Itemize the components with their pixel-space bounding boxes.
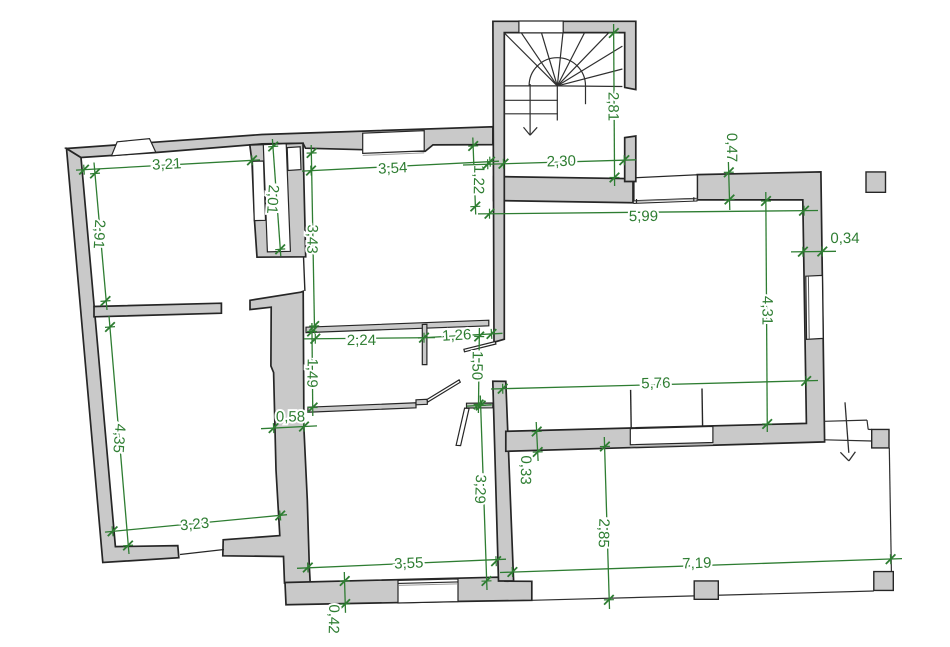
svg-text:1,50: 1,50 — [468, 351, 486, 380]
svg-text:5,76: 5,76 — [641, 375, 671, 393]
svg-text:3,23: 3,23 — [179, 515, 210, 535]
svg-text:1,26: 1,26 — [442, 326, 472, 345]
svg-text:0,58: 0,58 — [276, 409, 305, 426]
svg-text:3,54: 3,54 — [378, 159, 408, 178]
svg-text:0,34: 0,34 — [830, 230, 859, 247]
svg-text:2,01: 2,01 — [263, 184, 282, 214]
svg-text:0,42: 0,42 — [325, 604, 343, 633]
svg-text:7,19: 7,19 — [682, 554, 712, 572]
svg-text:2,91: 2,91 — [90, 219, 109, 249]
svg-text:2,85: 2,85 — [595, 518, 613, 548]
svg-text:2,30: 2,30 — [546, 152, 576, 170]
svg-text:4,31: 4,31 — [758, 296, 775, 325]
svg-text:3,21: 3,21 — [152, 155, 182, 174]
svg-text:0,47: 0,47 — [723, 133, 740, 162]
svg-text:3,55: 3,55 — [394, 554, 424, 572]
svg-text:2,24: 2,24 — [347, 332, 376, 349]
svg-text:2,81: 2,81 — [605, 92, 622, 121]
svg-text:1,49: 1,49 — [303, 358, 321, 387]
svg-text:5,99: 5,99 — [629, 208, 658, 225]
svg-text:1,22: 1,22 — [470, 165, 488, 194]
svg-text:4,35: 4,35 — [109, 423, 128, 453]
svg-text:3,43: 3,43 — [303, 224, 321, 253]
svg-text:3,29: 3,29 — [471, 474, 489, 504]
svg-text:0,33: 0,33 — [517, 455, 535, 484]
